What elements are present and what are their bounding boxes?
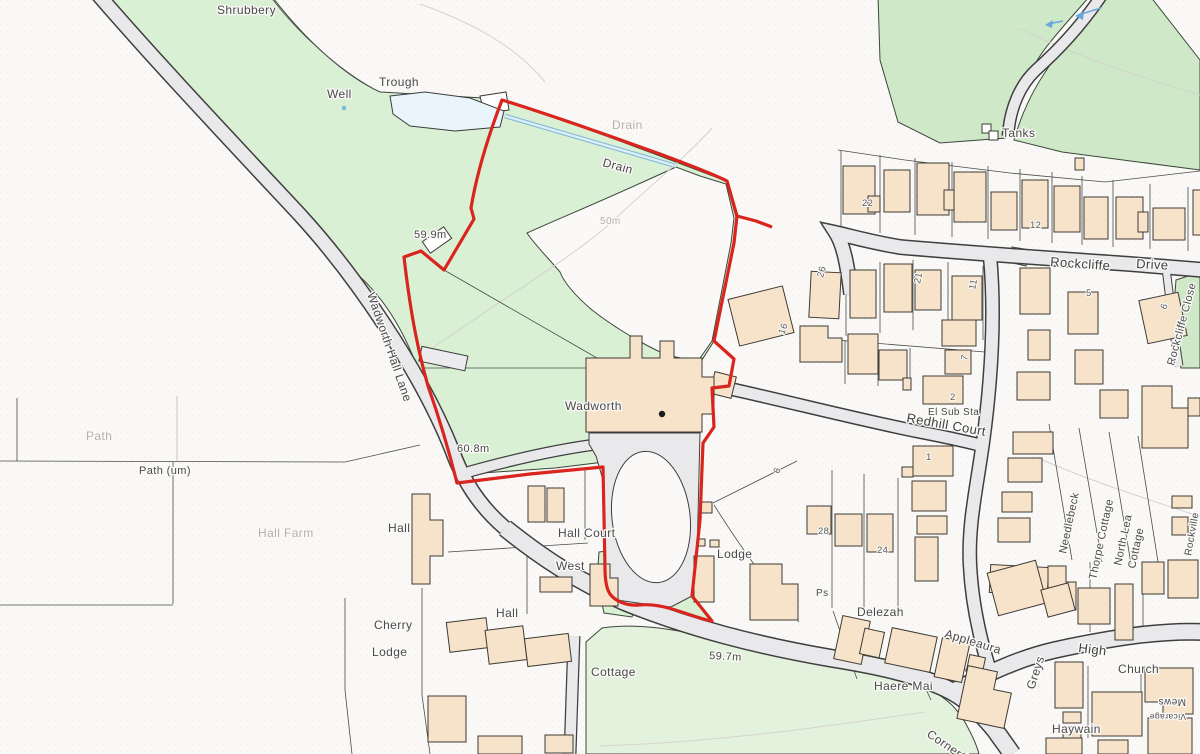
building <box>1188 398 1200 416</box>
building <box>1054 186 1080 232</box>
building <box>923 376 963 404</box>
label-hall-south: Hall <box>496 606 518 620</box>
label-hall-farm: Hall Farm <box>258 526 314 540</box>
label-spot-height: 59.7m <box>709 650 742 664</box>
label-ps: Ps <box>816 588 828 599</box>
map-viewport: Shrubbery Trough Well Drain Drain 50m 59… <box>0 0 1200 754</box>
house-number: 11 <box>967 278 980 291</box>
label-wadworth: Wadworth <box>565 399 622 413</box>
building <box>1172 517 1188 535</box>
building <box>478 736 522 754</box>
label-cherry-lodge: Lodge <box>372 645 407 659</box>
label-haere-mai: Haere Mai <box>874 679 933 693</box>
building <box>1100 390 1128 418</box>
building <box>1017 372 1050 400</box>
building <box>1138 212 1148 232</box>
building <box>879 350 907 380</box>
label-well: Well <box>327 87 352 101</box>
house-number: 5 <box>1086 288 1092 299</box>
building <box>884 170 910 212</box>
building <box>913 446 953 476</box>
building <box>917 516 947 534</box>
label-tanks: Tanks <box>1002 126 1035 140</box>
building <box>944 190 954 210</box>
building <box>1002 492 1032 512</box>
building <box>1028 330 1050 360</box>
label-contour-50m: 50m <box>600 216 621 227</box>
building <box>1075 350 1103 384</box>
building <box>998 518 1030 542</box>
building <box>915 537 938 581</box>
label-hall-court: Hall Court <box>558 526 616 540</box>
well-dot-icon <box>342 106 346 110</box>
building <box>1020 268 1050 314</box>
building <box>1078 588 1110 624</box>
building <box>1068 292 1098 334</box>
label-drain-upper: Drain <box>612 118 643 132</box>
house-number: 2 <box>950 392 956 403</box>
building <box>545 735 573 753</box>
label-path: Path <box>86 429 112 443</box>
building <box>710 540 719 547</box>
label-cottage: Cottage <box>591 665 636 679</box>
house-number: 1 <box>926 452 932 463</box>
label-drive: Drive <box>1136 256 1169 273</box>
label-lodge: Lodge <box>717 547 752 561</box>
building <box>1008 458 1042 482</box>
label-path-um: Path (um) <box>139 465 191 477</box>
house-number: 22 <box>862 198 873 209</box>
building <box>912 481 946 511</box>
house-number: 12 <box>1030 220 1041 231</box>
building <box>1098 740 1128 754</box>
house-number: 24 <box>877 545 888 556</box>
building <box>835 514 862 546</box>
map-canvas[interactable]: Shrubbery Trough Well Drain Drain 50m 59… <box>0 0 1200 754</box>
label-haywain: Haywain <box>1052 722 1101 736</box>
building <box>1084 197 1108 239</box>
label-mews: Mews <box>1158 696 1186 707</box>
building <box>1115 584 1133 640</box>
building <box>1148 718 1192 754</box>
building <box>1193 190 1200 235</box>
house-number: 21 <box>912 271 925 284</box>
label-church: Church <box>1118 662 1159 676</box>
label-spot-height: 59.9m <box>414 229 447 241</box>
label-hall-west: Hall <box>388 521 410 535</box>
house-number: 28 <box>818 526 829 537</box>
building <box>903 378 911 390</box>
building <box>954 172 986 222</box>
building <box>547 488 564 522</box>
label-trough: Trough <box>379 75 419 89</box>
building <box>902 467 913 477</box>
building <box>848 334 878 374</box>
label-west: West <box>556 559 585 573</box>
building <box>1142 562 1164 594</box>
building <box>1013 432 1053 454</box>
building <box>446 618 489 653</box>
building <box>991 192 1017 230</box>
label-vicarage: Vicarage <box>1149 712 1186 722</box>
label-cherry: Cherry <box>374 618 412 632</box>
building <box>485 626 527 664</box>
building <box>1153 208 1185 240</box>
building <box>850 270 876 318</box>
label-shrubbery: Shrubbery <box>217 3 276 17</box>
building <box>942 320 976 346</box>
benchmark-dot <box>659 411 665 417</box>
label-delezah: Delezah <box>857 605 904 619</box>
building <box>1075 158 1084 170</box>
building <box>528 486 545 522</box>
building <box>1046 738 1082 754</box>
building <box>884 264 912 312</box>
building <box>540 577 572 592</box>
building <box>428 696 466 742</box>
label-spot-height: 60.8m <box>457 443 490 455</box>
building <box>1168 560 1198 598</box>
tanks-structure <box>989 131 998 140</box>
building <box>524 633 571 666</box>
building <box>1172 496 1192 508</box>
building <box>1055 662 1083 708</box>
